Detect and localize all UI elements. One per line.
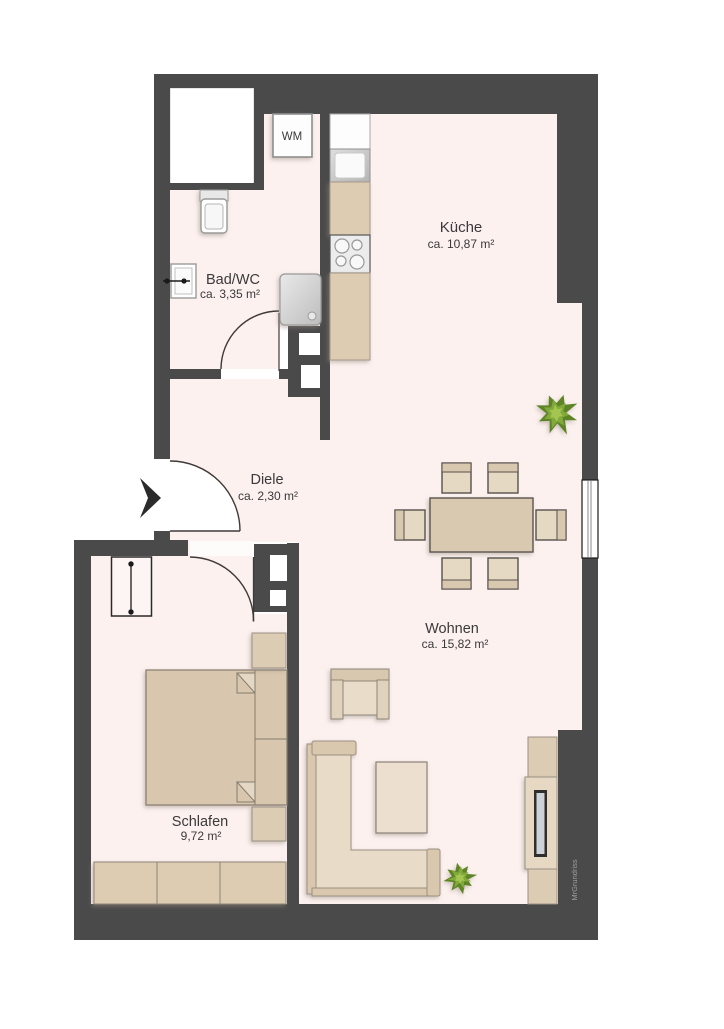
- svg-text:9,72 m²: 9,72 m²: [181, 829, 222, 843]
- svg-text:Küche: Küche: [440, 219, 483, 236]
- svg-text:Wohnen: Wohnen: [425, 621, 479, 637]
- svg-text:ca. 3,35 m²: ca. 3,35 m²: [200, 287, 260, 301]
- svg-text:Bad/WC: Bad/WC: [206, 272, 260, 288]
- svg-text:ca. 15,82 m²: ca. 15,82 m²: [422, 637, 489, 651]
- svg-text:MrGrundriss: MrGrundriss: [570, 859, 579, 901]
- svg-text:WM: WM: [282, 131, 302, 143]
- svg-text:ca. 10,87 m²: ca. 10,87 m²: [428, 237, 495, 251]
- svg-text:ca. 2,30 m²: ca. 2,30 m²: [238, 489, 298, 503]
- svg-text:Diele: Diele: [250, 472, 283, 488]
- svg-text:Schlafen: Schlafen: [172, 814, 228, 830]
